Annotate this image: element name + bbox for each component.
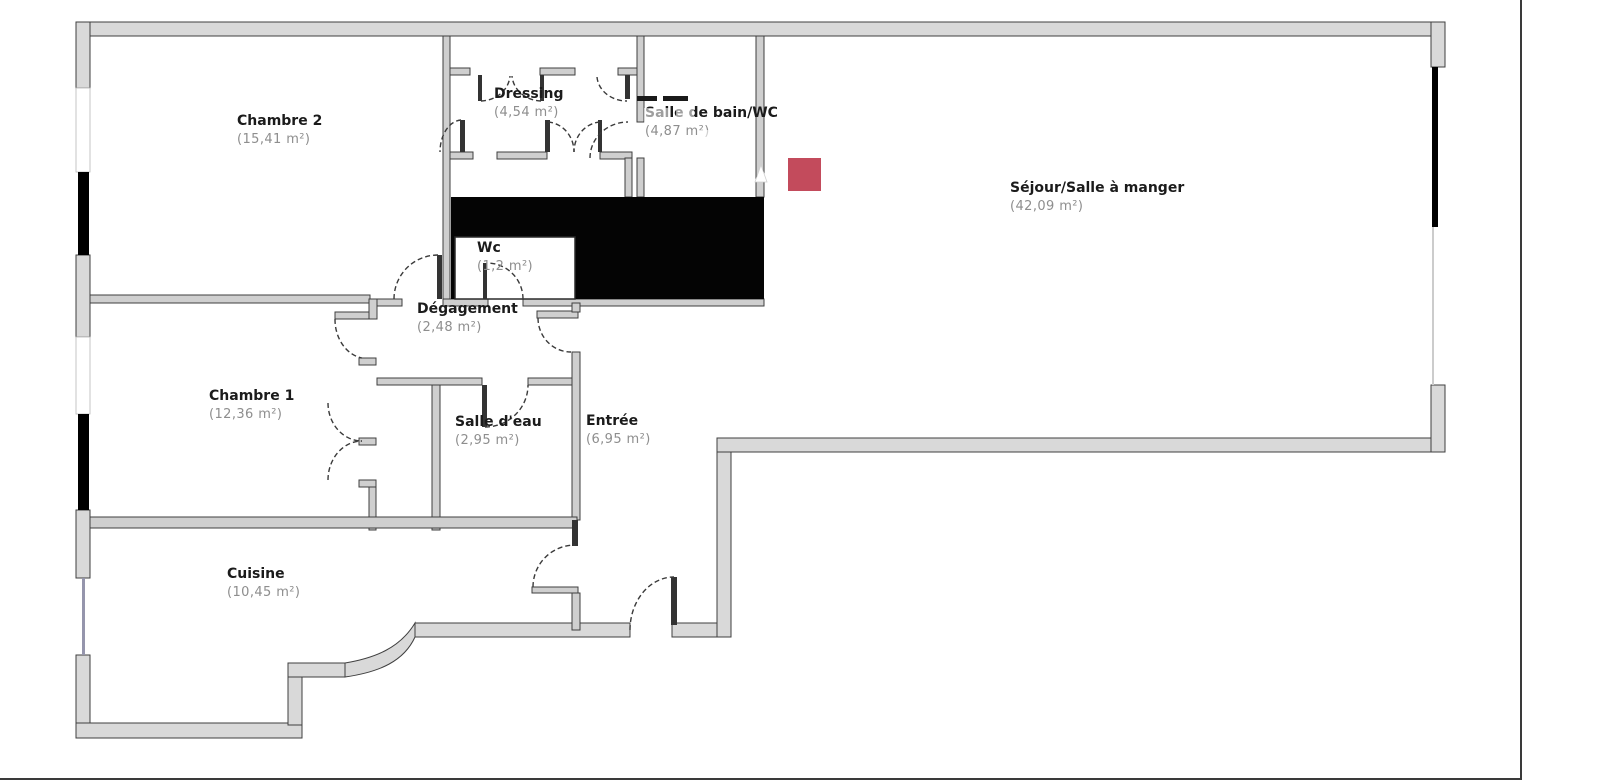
room-area: (2,48 m²) — [417, 321, 518, 335]
room-name: Dressing — [494, 86, 563, 102]
window-icon — [76, 88, 90, 172]
room-area: (2,95 m²) — [455, 434, 542, 448]
text-artifact-patch — [676, 109, 694, 124]
window-dark-icon — [78, 172, 89, 255]
text-artifact-patch — [699, 130, 715, 145]
room-name: Cuisine — [227, 566, 285, 582]
room-label-sejour: Séjour/Salle à manger (42,09 m²) — [1010, 181, 1184, 215]
door-arc-closet-lower — [328, 441, 362, 480]
room-label-degagement: Dégagement (2,48 m²) — [417, 302, 518, 336]
door-arc-entrance — [630, 577, 674, 630]
room-label-salle-d-eau: Salle d'eau (2,95 m²) — [455, 415, 542, 449]
window-line-icon — [82, 578, 85, 655]
floor-plan: Chambre 2 (15,41 m²) Dressing (4,54 m²) … — [0, 0, 1600, 783]
door-arc-dressing-2 — [597, 77, 627, 101]
room-name: Salle d'eau — [455, 414, 542, 430]
room-area: (42,09 m²) — [1010, 200, 1184, 214]
room-name: Dégagement — [417, 301, 518, 317]
room-name: Chambre 1 — [209, 388, 294, 404]
room-area: (15,41 m²) — [237, 133, 322, 147]
door-arc-dressing-3b — [574, 122, 600, 152]
room-area: (6,95 m²) — [586, 433, 651, 447]
room-label-wc: Wc (1,2 m²) — [477, 241, 533, 275]
door-arc-dressing-3a — [548, 122, 574, 152]
room-name: Entrée — [586, 413, 638, 429]
text-artifact-patch — [644, 108, 670, 125]
room-area: (12,36 m²) — [209, 408, 294, 422]
door-arc-chambre1 — [335, 319, 362, 358]
room-area: (10,45 m²) — [227, 586, 300, 600]
room-area: (1,2 m²) — [477, 260, 533, 274]
door-arc-closet-upper — [328, 403, 362, 441]
room-label-chambre-2: Chambre 2 (15,41 m²) — [237, 114, 322, 148]
window-icon — [76, 337, 90, 414]
window-dark-icon — [78, 414, 89, 510]
window-dark-icon — [1432, 67, 1438, 227]
door-arc-degagement — [538, 318, 571, 352]
room-name: Chambre 2 — [237, 113, 322, 129]
room-label-cuisine: Cuisine (10,45 m²) — [227, 567, 300, 601]
door-arc-cuisine — [533, 545, 575, 587]
room-label-entree: Entrée (6,95 m²) — [586, 414, 651, 448]
door-arc-chambre2 — [394, 255, 438, 299]
curved-wall — [345, 623, 415, 677]
room-area: (4,54 m²) — [494, 106, 563, 120]
room-name: Séjour/Salle à manger — [1010, 180, 1184, 196]
red-square-marker — [788, 158, 821, 191]
window-line-icon — [1432, 227, 1434, 385]
room-name: Wc — [477, 240, 501, 256]
room-label-dressing: Dressing (4,54 m²) — [494, 87, 563, 121]
room-label-chambre-1: Chambre 1 (12,36 m²) — [209, 389, 294, 423]
